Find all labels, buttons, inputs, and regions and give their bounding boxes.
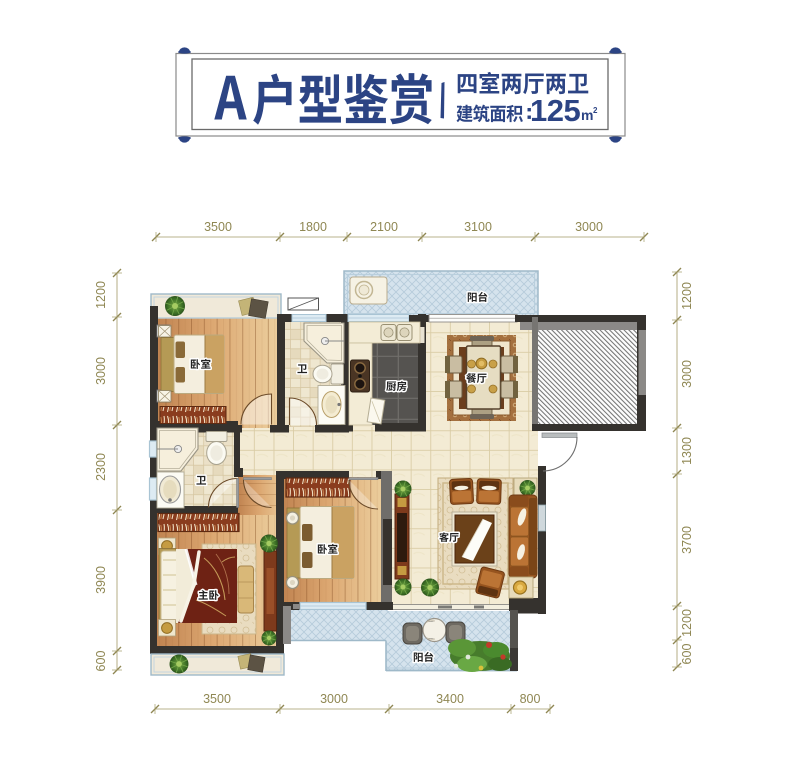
- svg-text:3500: 3500: [204, 220, 232, 234]
- svg-text:3500: 3500: [203, 692, 231, 706]
- svg-text:3000: 3000: [680, 360, 694, 388]
- svg-text:800: 800: [520, 692, 541, 706]
- svg-text:3000: 3000: [94, 357, 108, 385]
- svg-text:m: m: [581, 107, 593, 123]
- svg-text:600: 600: [680, 644, 694, 665]
- svg-text:3700: 3700: [680, 526, 694, 554]
- svg-text:3000: 3000: [575, 220, 603, 234]
- svg-text:1300: 1300: [680, 437, 694, 465]
- svg-text:3900: 3900: [94, 566, 108, 594]
- svg-text:600: 600: [94, 651, 108, 672]
- svg-text:2: 2: [593, 106, 598, 115]
- svg-text:1200: 1200: [94, 281, 108, 309]
- svg-text:125: 125: [530, 93, 580, 128]
- svg-text:2300: 2300: [94, 453, 108, 481]
- svg-text:1200: 1200: [680, 282, 694, 310]
- svg-text:3100: 3100: [464, 220, 492, 234]
- svg-text:2100: 2100: [370, 220, 398, 234]
- svg-text:1800: 1800: [299, 220, 327, 234]
- svg-text:3400: 3400: [436, 692, 464, 706]
- svg-text:3000: 3000: [320, 692, 348, 706]
- svg-text:1200: 1200: [680, 609, 694, 637]
